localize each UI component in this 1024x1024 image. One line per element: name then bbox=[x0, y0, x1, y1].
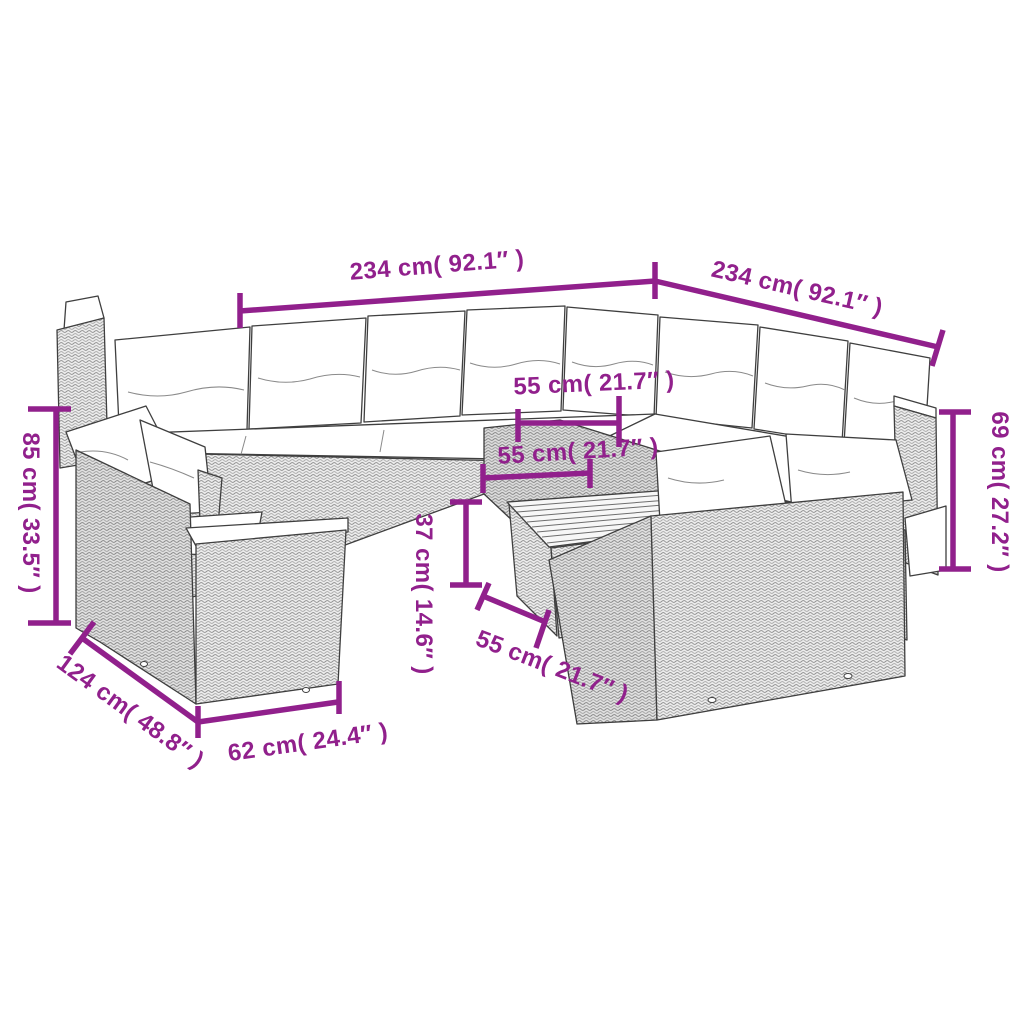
sofa-set-illustration bbox=[0, 0, 1024, 1024]
dimension-label-back-height: 69 cm( 27.2″ ) bbox=[985, 411, 1013, 572]
dim-line-table-height bbox=[450, 502, 482, 585]
left-sofa-armrest-panel bbox=[196, 530, 346, 704]
dimension-label-table-height: 37 cm( 14.6″ ) bbox=[409, 513, 437, 674]
bottom-sofa-seat-sliver bbox=[905, 506, 946, 576]
product-dimension-diagram: 234 cm( 92.1″ ) 234 cm( 92.1″ ) 69 cm( 2… bbox=[0, 0, 1024, 1024]
bottom-sofa-back-panel bbox=[651, 492, 905, 720]
dimension-label-sofa-height: 85 cm( 33.5″ ) bbox=[16, 432, 44, 593]
